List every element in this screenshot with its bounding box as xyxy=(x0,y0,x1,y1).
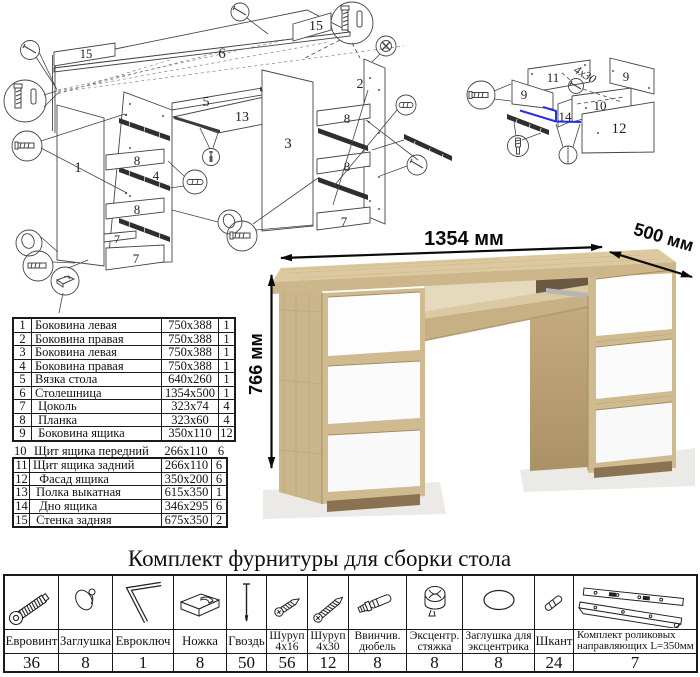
svg-text:8: 8 xyxy=(344,111,351,126)
svg-text:8: 8 xyxy=(134,153,141,168)
svg-text:9: 9 xyxy=(521,87,528,102)
svg-text:5: 5 xyxy=(203,95,210,110)
svg-text:1: 1 xyxy=(74,160,82,176)
svg-text:11: 11 xyxy=(547,70,560,85)
svg-text:15: 15 xyxy=(309,19,323,34)
svg-text:15: 15 xyxy=(80,47,93,61)
svg-text:7: 7 xyxy=(341,214,348,229)
svg-text:8: 8 xyxy=(134,202,141,217)
svg-text:766 мм: 766 мм xyxy=(246,333,266,395)
svg-text:12: 12 xyxy=(612,121,627,137)
svg-text:7: 7 xyxy=(133,251,140,266)
svg-text:4: 4 xyxy=(153,168,160,183)
svg-text:7: 7 xyxy=(114,232,120,246)
svg-text:3: 3 xyxy=(284,136,292,152)
svg-text:1354 мм: 1354 мм xyxy=(424,228,504,250)
svg-text:9: 9 xyxy=(623,69,630,84)
svg-text:13: 13 xyxy=(235,110,249,125)
svg-text:2: 2 xyxy=(357,77,364,92)
